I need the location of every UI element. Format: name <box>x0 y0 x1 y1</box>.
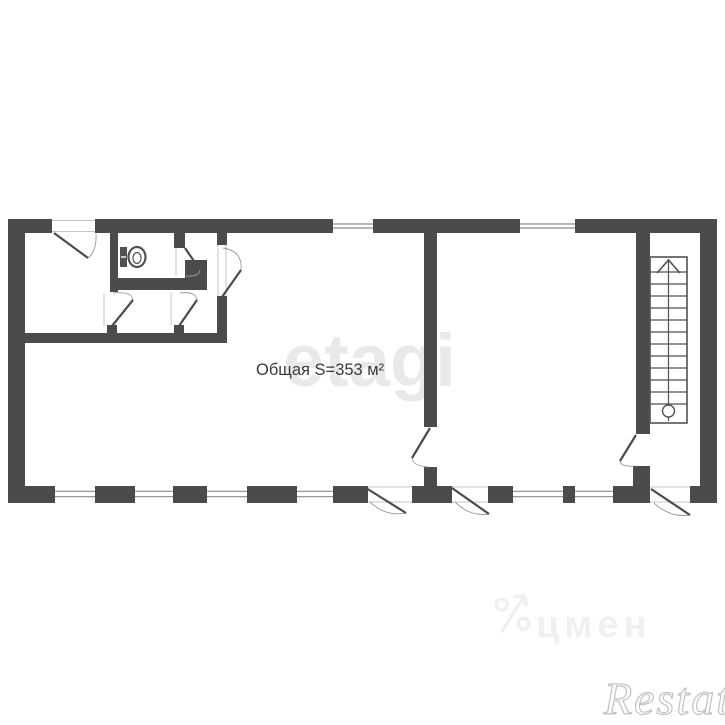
cian-watermark: цмен <box>536 604 652 647</box>
top-wall-c <box>373 219 520 233</box>
toilet-right-stub <box>174 233 185 248</box>
bottom-wall-mullion <box>563 486 575 503</box>
top-wall-d <box>575 219 717 233</box>
floor-plan-page: etagi Общая S=353 м² цмен Restate <box>0 0 725 725</box>
corridor-wall <box>8 333 227 343</box>
window-bottom-5 <box>513 486 563 502</box>
percent-arrow-watermark-icon <box>489 585 540 641</box>
exit-door-3-swing-arc <box>654 503 690 516</box>
middle-partition-stub <box>424 467 437 486</box>
bottom-wall-e <box>333 486 368 503</box>
corridor-stub-2 <box>174 325 184 334</box>
window-bottom-6 <box>575 486 613 502</box>
corridor-door-1-swing-arc <box>113 293 133 300</box>
mid-room-door-swing-arc <box>412 458 428 467</box>
window-top-2 <box>520 220 575 232</box>
hall-door-leaf <box>222 270 241 297</box>
bottom-wall-a <box>8 486 55 503</box>
bottom-wall-h <box>613 486 650 503</box>
entrance-door-swing-arc <box>88 234 96 258</box>
bottom-wall-c <box>173 486 207 503</box>
corridor-door-2-leaf <box>179 300 197 326</box>
bottom-wall-i <box>690 486 717 503</box>
exit-door-2-leaf <box>452 488 489 514</box>
right-partition-stub <box>633 466 650 486</box>
corridor-door-2-swing-arc <box>180 293 197 300</box>
top-wall-b <box>95 219 333 233</box>
window-bottom-3 <box>207 486 247 502</box>
corridor-stub-1 <box>107 325 117 334</box>
exit-door-1-swing-arc <box>370 502 406 514</box>
bottom-wall-b <box>95 486 135 503</box>
right-wall <box>700 219 717 503</box>
restate-watermark: Restate <box>604 672 725 725</box>
stair-hall-door-swing-arc <box>620 461 634 466</box>
corridor-door-1-leaf <box>112 300 133 326</box>
middle-partition <box>424 233 437 427</box>
cluster-right-stub-top <box>217 233 227 245</box>
window-bottom-1 <box>55 486 95 502</box>
stair-start-circle <box>663 405 675 417</box>
mid-room-door-leaf <box>412 428 430 458</box>
bottom-wall-f <box>412 486 452 503</box>
window-bottom-4 <box>297 486 333 502</box>
window-top-1 <box>333 220 373 232</box>
bottom-wall-g <box>488 486 513 503</box>
exit-door-2-swing-arc <box>455 502 489 515</box>
entrance-door-leaf <box>54 233 88 258</box>
bottom-wall-d <box>247 486 297 503</box>
total-area-label: Общая S=353 м² <box>256 361 384 380</box>
right-partition <box>636 233 650 434</box>
window-bottom-2 <box>135 486 173 502</box>
left-wall <box>8 219 25 503</box>
toilet-bottom-wall <box>110 278 185 290</box>
stair-hall-door-leaf <box>620 435 636 461</box>
exit-door-1-leaf <box>366 488 406 513</box>
